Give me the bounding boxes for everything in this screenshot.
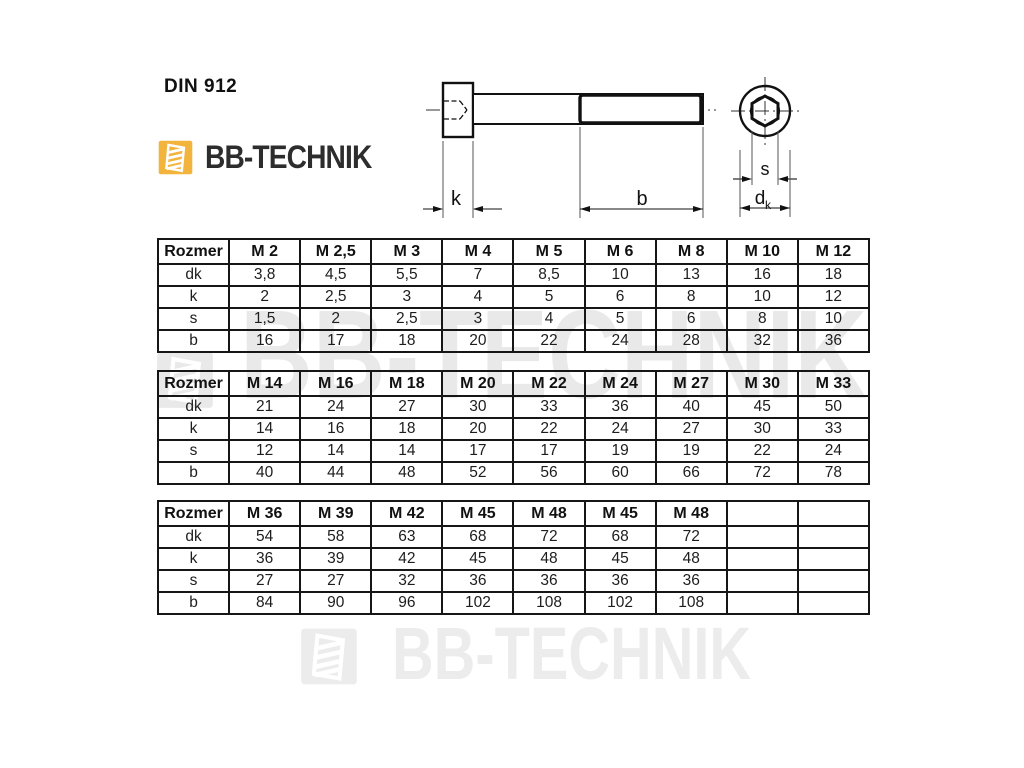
table-cell: 68 [585,526,656,548]
table-cell: 42 [371,548,442,570]
brand-logo: BB-TECHNIK [158,139,394,176]
table-cell: 17 [513,440,584,462]
table-cell: 5 [585,308,656,330]
table-cell: 22 [727,440,798,462]
table-cell: 19 [585,440,656,462]
table-cell: dk [158,526,229,548]
table-header-cell: M 6 [585,239,656,264]
table-cell: 18 [371,330,442,352]
table-cell: 56 [513,462,584,484]
table-cell: 39 [300,548,371,570]
table-cell: s [158,308,229,330]
page-title: DIN 912 [164,76,237,98]
table-cell: 13 [656,264,727,286]
screw-head-side [443,83,473,137]
table-cell: 5,5 [371,264,442,286]
table-cell: dk [158,396,229,418]
screw-technical-drawing: k b s d k [420,55,890,235]
table-cell: 30 [442,396,513,418]
table-cell: 24 [585,330,656,352]
table-cell: 36 [798,330,869,352]
table-header-cell: M 20 [442,371,513,396]
table-row: k141618202224273033 [158,418,869,440]
table-cell: k [158,548,229,570]
table-cell: 33 [513,396,584,418]
table-header-cell: M 48 [656,501,727,526]
table-cell: 17 [442,440,513,462]
table-cell: 36 [585,570,656,592]
datasheet-page: BB-TECHNIK BB-TECHNIK DIN 912 BB-TECHNIK [0,0,1024,768]
table-cell [798,526,869,548]
table-cell: dk [158,264,229,286]
table-cell: 18 [371,418,442,440]
table-cell: 24 [798,440,869,462]
table-cell: 72 [656,526,727,548]
table-cell: 19 [656,440,727,462]
table-cell [798,570,869,592]
table-header-cell: M 48 [513,501,584,526]
table-cell: 24 [585,418,656,440]
table-cell: 10 [585,264,656,286]
table-header-cell: M 24 [585,371,656,396]
watermark-bottom: BB-TECHNIK [392,617,751,691]
table-row: s121414171719192224 [158,440,869,462]
table-cell: 4 [442,286,513,308]
table-cell: 32 [727,330,798,352]
screw-shank [473,94,703,124]
table-cell: 14 [300,440,371,462]
table-cell: 14 [229,418,300,440]
table-header-cell: Rozmer [158,371,229,396]
table-cell: 5 [513,286,584,308]
table-header-cell: M 45 [585,501,656,526]
table-cell: 27 [229,570,300,592]
table-cell: 18 [798,264,869,286]
table-cell: 78 [798,462,869,484]
table-cell: 30 [727,418,798,440]
table-row: b404448525660667278 [158,462,869,484]
table-cell: b [158,330,229,352]
table-cell: 108 [513,592,584,614]
table-row: dk3,84,55,578,510131618 [158,264,869,286]
table-cell: 40 [229,462,300,484]
table-row: dk54586368726872 [158,526,869,548]
table-row: s27273236363636 [158,570,869,592]
table-cell: 2 [229,286,300,308]
table-header-cell: M 8 [656,239,727,264]
table-cell: 27 [300,570,371,592]
table-cell: 33 [798,418,869,440]
table-cell: 50 [798,396,869,418]
table-header-cell: M 33 [798,371,869,396]
table-header-cell [727,501,798,526]
dimension-table-m14-m33: RozmerM 14M 16M 18M 20M 22M 24M 27M 30M … [157,370,870,485]
table-header-cell: Rozmer [158,239,229,264]
table-cell: 102 [585,592,656,614]
table-cell: 4,5 [300,264,371,286]
table-cell [798,548,869,570]
table-cell [727,526,798,548]
table-cell: 14 [371,440,442,462]
table-cell: 8 [727,308,798,330]
dim-label-s: s [761,159,770,179]
dim-label-dk: d [755,188,766,209]
table-header-cell: M 2 [229,239,300,264]
table-header-cell: M 5 [513,239,584,264]
table-header-cell: M 22 [513,371,584,396]
table-cell: 10 [727,286,798,308]
dim-label-b: b [636,188,647,210]
table-cell: 3 [442,308,513,330]
table-cell: 24 [300,396,371,418]
table-header-cell: Rozmer [158,501,229,526]
table-cell: 48 [513,548,584,570]
table-header-cell: M 45 [442,501,513,526]
table-header-row: RozmerM 2M 2,5M 3M 4M 5M 6M 8M 10M 12 [158,239,869,264]
table-cell: 102 [442,592,513,614]
table-cell: 3 [371,286,442,308]
screw-logo-icon [158,140,193,175]
watermark-logo-icon [300,627,358,686]
dim-label-k: k [451,188,462,210]
table-cell: 58 [300,526,371,548]
table-header-cell: M 36 [229,501,300,526]
table-cell: 36 [585,396,656,418]
table-header-cell: M 14 [229,371,300,396]
table-cell: 8,5 [513,264,584,286]
table-cell: k [158,418,229,440]
table-cell: 72 [513,526,584,548]
table-cell: 22 [513,418,584,440]
table-header-row: RozmerM 36M 39M 42M 45M 48M 45M 48 [158,501,869,526]
table-cell: 36 [656,570,727,592]
table-cell: 4 [513,308,584,330]
table-header-cell: M 16 [300,371,371,396]
table-cell: 7 [442,264,513,286]
table-row: k22,5345681012 [158,286,869,308]
table-cell: 12 [798,286,869,308]
table-cell: 2,5 [371,308,442,330]
table-cell: 72 [727,462,798,484]
table-cell: 66 [656,462,727,484]
table-cell: 27 [371,396,442,418]
table-cell: 45 [442,548,513,570]
table-cell: 54 [229,526,300,548]
table-header-cell: M 30 [727,371,798,396]
table-cell: 84 [229,592,300,614]
table-cell: 32 [371,570,442,592]
dimension-table-m2-m12: RozmerM 2M 2,5M 3M 4M 5M 6M 8M 10M 12dk3… [157,238,870,353]
table-cell: 63 [371,526,442,548]
table-cell: 22 [513,330,584,352]
table-cell: 108 [656,592,727,614]
table-cell: 3,8 [229,264,300,286]
table-cell: 20 [442,418,513,440]
table-cell: 52 [442,462,513,484]
table-header-cell: M 12 [798,239,869,264]
table-cell: 68 [442,526,513,548]
table-cell: 6 [656,308,727,330]
table-cell: b [158,462,229,484]
table-row: k36394245484548 [158,548,869,570]
table-cell: 44 [300,462,371,484]
table-cell: 45 [727,396,798,418]
table-header-cell: M 10 [727,239,798,264]
table-cell: 21 [229,396,300,418]
table-cell: 2 [300,308,371,330]
dim-label-dk-sub: k [765,198,772,212]
table-header-cell: M 18 [371,371,442,396]
table-row: b161718202224283236 [158,330,869,352]
table-cell: 40 [656,396,727,418]
table-cell [798,592,869,614]
table-header-cell: M 3 [371,239,442,264]
table-header-cell: M 42 [371,501,442,526]
table-header-cell: M 27 [656,371,727,396]
table-cell: 16 [300,418,371,440]
table-header-cell: M 39 [300,501,371,526]
table-cell: 36 [513,570,584,592]
table-row: s1,522,53456810 [158,308,869,330]
table-cell: 10 [798,308,869,330]
table-cell: 2,5 [300,286,371,308]
table-cell: s [158,440,229,462]
table-cell: 17 [300,330,371,352]
table-cell: 60 [585,462,656,484]
table-cell: 12 [229,440,300,462]
table-cell [727,548,798,570]
table-row: b849096102108102108 [158,592,869,614]
brand-name: BB-TECHNIK [205,139,371,176]
table-cell: 16 [727,264,798,286]
table-cell: 20 [442,330,513,352]
table-cell: 45 [585,548,656,570]
table-cell: k [158,286,229,308]
table-cell: 36 [229,548,300,570]
table-cell [727,592,798,614]
table-header-cell: M 4 [442,239,513,264]
table-cell: 16 [229,330,300,352]
table-cell: 8 [656,286,727,308]
table-cell: s [158,570,229,592]
table-header-cell: M 2,5 [300,239,371,264]
table-cell: 6 [585,286,656,308]
table-cell: b [158,592,229,614]
table-cell: 48 [371,462,442,484]
dimension-table-m36-m48: RozmerM 36M 39M 42M 45M 48M 45M 48dk5458… [157,500,870,615]
table-cell: 96 [371,592,442,614]
table-header-cell [798,501,869,526]
table-cell: 27 [656,418,727,440]
table-cell: 36 [442,570,513,592]
table-cell: 90 [300,592,371,614]
table-row: dk212427303336404550 [158,396,869,418]
table-cell: 28 [656,330,727,352]
table-cell: 48 [656,548,727,570]
table-cell [727,570,798,592]
table-cell: 1,5 [229,308,300,330]
table-header-row: RozmerM 14M 16M 18M 20M 22M 24M 27M 30M … [158,371,869,396]
